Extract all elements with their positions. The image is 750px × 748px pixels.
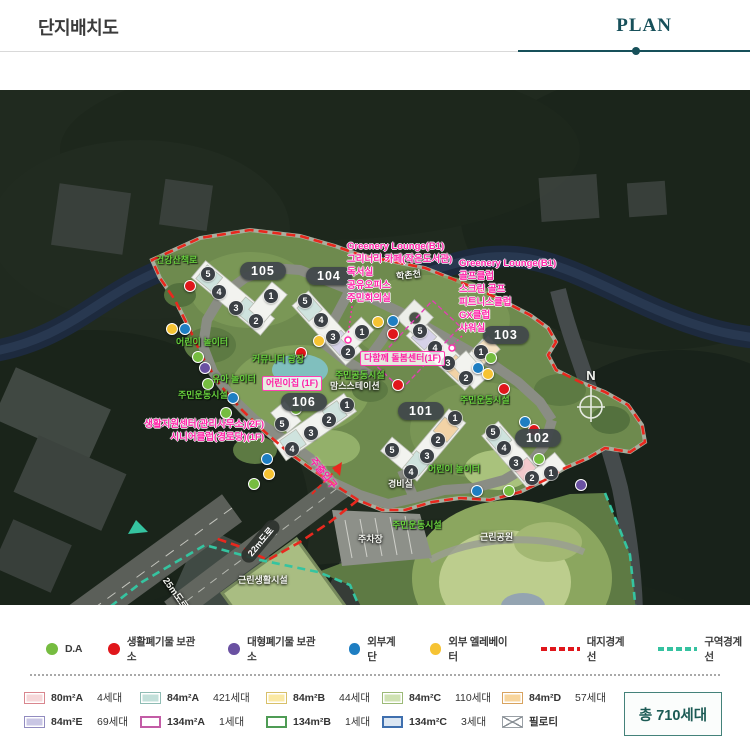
unit-swatch [140, 716, 161, 728]
elevator-dot [372, 316, 384, 328]
unit-chip: 2 [322, 413, 336, 427]
pilotis-swatch [502, 716, 523, 728]
elevator-dot [482, 368, 494, 380]
da-dot [192, 351, 204, 363]
legend-label: 구역경계선 [704, 634, 750, 664]
unit-name: 134m²C [409, 716, 461, 728]
unit-chip: 4 [285, 442, 299, 456]
unit-chip: 3 [326, 330, 340, 344]
unit-name: 84m²C [409, 692, 455, 704]
label-neighborhood-park: 근린공원 [480, 530, 513, 543]
legend-label: 대형폐기물 보관소 [247, 634, 323, 664]
unit-swatch [24, 716, 45, 728]
unit-count: 3세대 [461, 714, 486, 729]
legend-label: 외부계단 [367, 634, 403, 664]
unit-count: 69세대 [97, 714, 128, 729]
bulky-waste-dot [199, 362, 211, 374]
bulky-waste-dot [228, 643, 240, 655]
da-dot [503, 485, 515, 497]
building-badge-106: 106 [281, 393, 327, 411]
unit-name: 134m²B [293, 716, 345, 728]
unit-swatch [382, 716, 403, 728]
da-dot [46, 643, 58, 655]
stairs-dot [471, 485, 483, 497]
legend-item-household-waste: 생활폐기물 보관소 [108, 634, 202, 664]
elevator-dot [263, 468, 275, 480]
unit-swatch [266, 692, 287, 704]
unit-chip: 5 [298, 294, 312, 308]
unit-swatch [382, 692, 403, 704]
unit-chip: 3 [420, 449, 434, 463]
unit-chip: 3 [304, 426, 318, 440]
unit-type-134b: 134m²B 1세대 [266, 714, 382, 729]
annotation-line: 샤워실 [459, 322, 556, 335]
unit-type-84d: 84m²D 57세대 [502, 690, 614, 705]
da-dot [248, 478, 260, 490]
unit-count: 1세대 [219, 714, 244, 729]
legend-label: 외부 엘레베이터 [448, 634, 514, 664]
total-households-box: 총 710세대 [624, 692, 722, 736]
unit-name: 84m²E [51, 716, 97, 728]
stairs-dot [179, 323, 191, 335]
legend-item-bulky-waste: 대형폐기물 보관소 [228, 634, 322, 664]
unit-chip: 2 [525, 471, 539, 485]
label-kids-playground-2: 어린이 놀이터 [428, 462, 480, 475]
tab-indicator-dot [632, 47, 640, 55]
unit-chip: 5 [275, 417, 289, 431]
label-daycare: 어린이집 (1F) [262, 376, 322, 391]
tab-plan[interactable]: PLAN [616, 15, 672, 37]
stairs-dot [227, 392, 239, 404]
label-care-center: 다함께 돌봄센터(1F) [360, 351, 445, 366]
page-title: 단지배치도 [38, 14, 118, 40]
unit-chip: 3 [229, 301, 243, 315]
building-badge-105: 105 [240, 262, 286, 280]
north-compass: N [578, 368, 604, 383]
label-residents-sports-park: 주민운동시설 [392, 518, 442, 531]
district-boundary-line [658, 647, 697, 651]
legend-item-outdoor-stairs: 외부계단 [349, 634, 404, 664]
legend-item-outdoor-elevator: 외부 엘레베이터 [430, 634, 515, 664]
waste-dot [392, 379, 404, 391]
unit-count: 1세대 [345, 714, 370, 729]
waste-dot [108, 643, 120, 655]
unit-swatch [24, 692, 45, 704]
waste-dot [184, 280, 196, 292]
building-badge-102: 102 [515, 429, 561, 447]
legend-divider [30, 674, 720, 676]
annotation-line: GX클럽 [459, 309, 556, 322]
unit-count: 4세대 [97, 690, 122, 705]
legend-label: 생활폐기물 보관소 [127, 634, 203, 664]
unit-type-84b: 84m²B 44세대 [266, 690, 382, 705]
unit-chip: 2 [341, 345, 355, 359]
legend-item-site-boundary: 대지경계선 [541, 634, 633, 664]
site-plan-page: 단지배치도 PLAN [0, 0, 750, 748]
unit-chip: 5 [486, 425, 500, 439]
site-boundary-line [541, 647, 580, 651]
annotation-line: 주민회의실 [347, 292, 452, 305]
label-kids-playground: 어린이 놀이터 [176, 335, 228, 348]
unit-type-pilotis: 필로티 [502, 714, 614, 729]
unit-chip: 2 [431, 433, 445, 447]
legend-item-district-boundary: 구역경계선 [658, 634, 750, 664]
unit-chip: 5 [413, 324, 427, 338]
unit-chip: 2 [459, 371, 473, 385]
label-support-center: 생활지원센터(관리사무소)(2F) [88, 418, 264, 431]
stairs-dot [349, 643, 361, 655]
unit-type-80a: 80m²A 4세대 [24, 690, 140, 705]
elevator-dot [430, 643, 442, 655]
unit-chip: 1 [264, 289, 278, 303]
waste-dot [387, 328, 399, 340]
label-residents-sports-102: 주민운동시설 [460, 393, 510, 406]
elevator-dot [166, 323, 178, 335]
unit-chip: 1 [544, 466, 558, 480]
unit-type-84c: 84m²C 110세대 [382, 690, 502, 705]
unit-chip: 5 [385, 443, 399, 457]
annotation-line: Greenery Lounge(B1) [459, 257, 556, 270]
label-senior-club: 시니어클럽(경로당)(1F) [88, 431, 264, 444]
label-moms-station: 맘스스테이션 [330, 379, 380, 392]
da-dot [485, 352, 497, 364]
unit-chip: 1 [448, 411, 462, 425]
unit-type-84a: 84m²A 421세대 [140, 690, 266, 705]
legend-item-da: D.A [46, 643, 82, 655]
unit-count: 57세대 [575, 690, 606, 705]
label-guard-post: 경비실 [388, 477, 413, 490]
da-dot [533, 453, 545, 465]
unit-count: 110세대 [455, 690, 491, 705]
unit-name: 80m²A [51, 692, 97, 704]
annotation-greenery-lounge-right: Greenery Lounge(B1) 골프클럽 스크린 골프 피트니스클럽 G… [459, 257, 556, 335]
legend-units: 80m²A 4세대 84m²A 421세대 84m²B 44세대 84m²C 1… [24, 690, 604, 729]
unit-chip: 4 [497, 441, 511, 455]
unit-type-134c: 134m²C 3세대 [382, 714, 502, 729]
stairs-dot [261, 453, 273, 465]
unit-chip: 2 [249, 314, 263, 328]
label-parking-lot: 주차장 [358, 532, 383, 545]
annotation-line: 스크린 골프 [459, 283, 556, 296]
unit-swatch [266, 716, 287, 728]
unit-name: 84m²B [293, 692, 339, 704]
unit-chip: 4 [314, 313, 328, 327]
label-health-trail: 건강산책로 [156, 253, 197, 266]
legend-markers: D.A 생활폐기물 보관소 대형폐기물 보관소 외부계단 외부 엘레베이터 대지… [0, 634, 750, 664]
unit-chip: 1 [340, 398, 354, 412]
unit-chip: 1 [355, 325, 369, 339]
unit-chip: 4 [212, 285, 226, 299]
legend-label: D.A [65, 643, 82, 655]
unit-name: 84m²D [529, 692, 575, 704]
unit-name: 필로티 [529, 714, 575, 729]
unit-count: 421세대 [213, 690, 250, 705]
label-residents-sports-left: 주민운동시설 [178, 388, 228, 401]
label-community-plaza: 커뮤니티 광장 [252, 352, 304, 365]
bulky-waste-dot [575, 479, 587, 491]
unit-swatch [502, 692, 523, 704]
building-badge-101: 101 [398, 402, 444, 420]
elevator-dot [313, 335, 325, 347]
annotation-line: 피트니스클럽 [459, 296, 556, 309]
unit-chip: 3 [509, 456, 523, 470]
unit-type-84e: 84m²E 69세대 [24, 714, 140, 729]
unit-name: 84m²A [167, 692, 213, 704]
annotation-line: Greenery Lounge(B1) [347, 240, 452, 253]
unit-name: 134m²A [167, 716, 219, 728]
label-retail-facility: 근린생활시설 [238, 573, 288, 586]
header: 단지배치도 PLAN [0, 0, 750, 56]
stairs-dot [387, 315, 399, 327]
annotation-line: 그리너리 카페(작은도서관) [347, 253, 452, 266]
unit-swatch [140, 692, 161, 704]
unit-chip: 5 [201, 267, 215, 281]
label-toddler-playground: 유아 놀이터 [212, 372, 256, 385]
site-map-graphic [0, 90, 750, 605]
unit-count: 44세대 [339, 690, 370, 705]
annotation-line: 골프클럽 [459, 270, 556, 283]
legend-label: 대지경계선 [587, 634, 633, 664]
site-map: 5 4 3 2 1 5 4 3 2 1 5 4 3 2 1 1 2 3 4 5 … [0, 90, 750, 605]
building-badge-104: 104 [306, 267, 352, 285]
unit-type-134a: 134m²A 1세대 [140, 714, 266, 729]
